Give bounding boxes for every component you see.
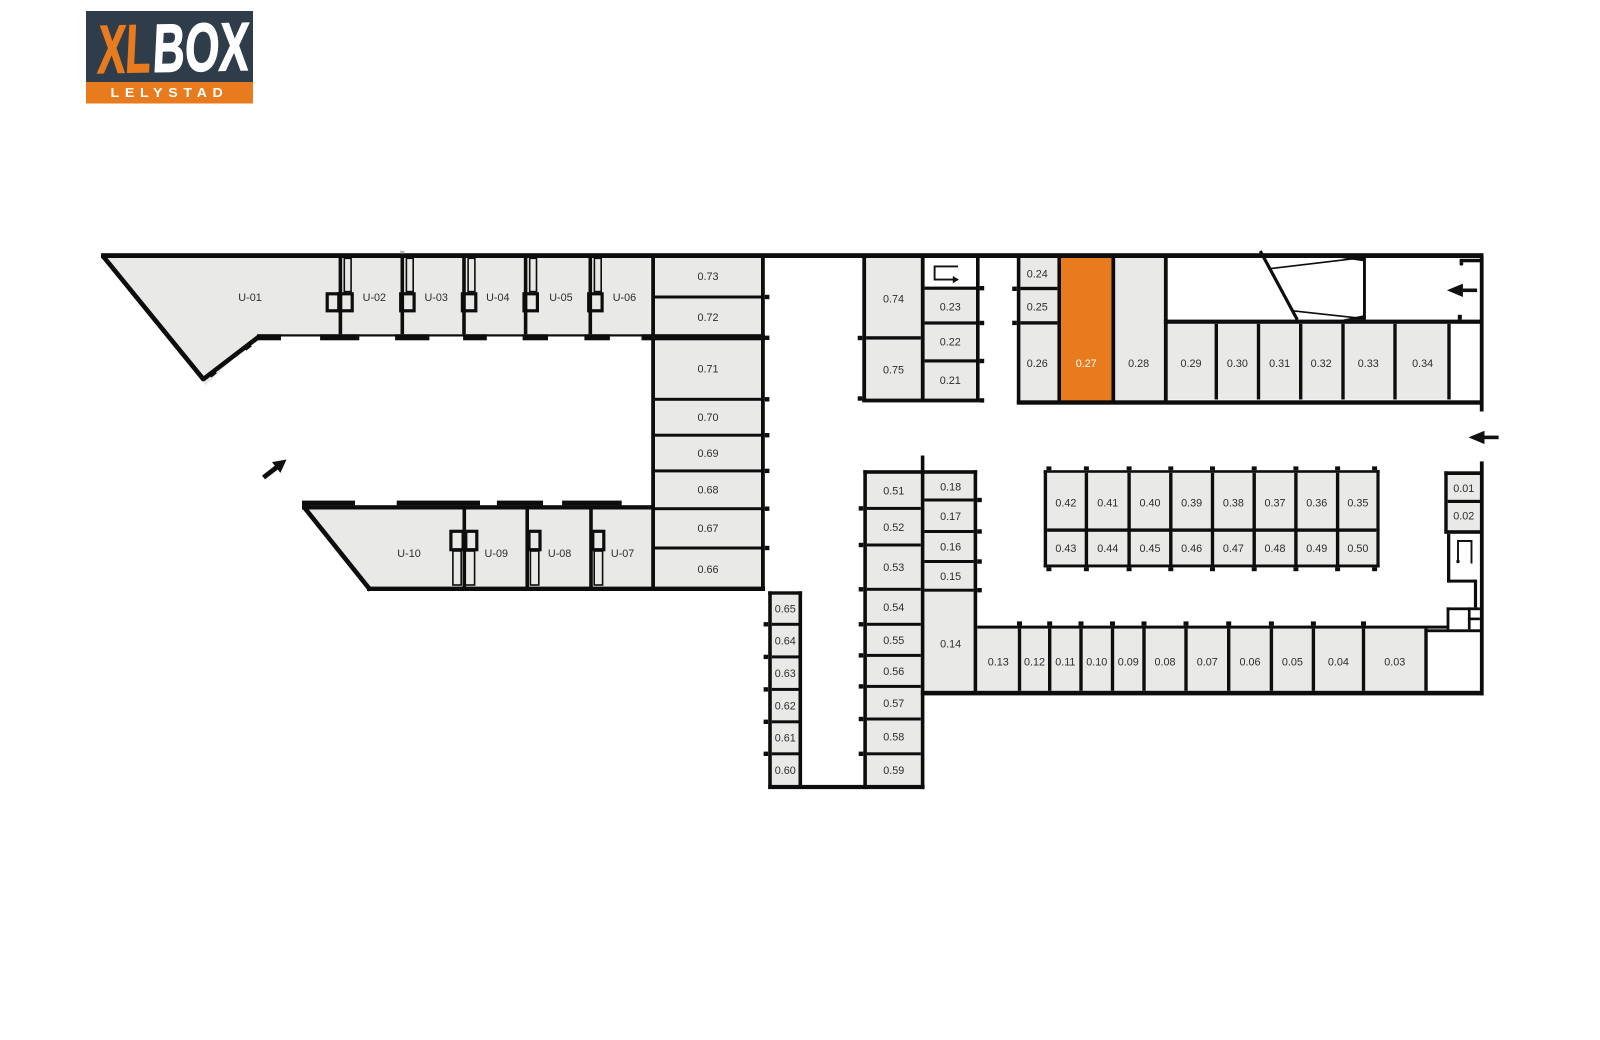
svg-text:0.44: 0.44 (1097, 543, 1118, 555)
svg-text:0.43: 0.43 (1055, 543, 1076, 555)
svg-text:0.04: 0.04 (1328, 656, 1349, 668)
svg-text:0.16: 0.16 (940, 541, 961, 553)
svg-text:0.03: 0.03 (1384, 656, 1405, 668)
svg-text:0.70: 0.70 (697, 412, 718, 424)
svg-text:0.61: 0.61 (775, 732, 796, 744)
svg-text:0.33: 0.33 (1358, 358, 1379, 370)
svg-text:0.39: 0.39 (1181, 498, 1202, 510)
svg-text:0.32: 0.32 (1311, 358, 1332, 370)
svg-text:0.40: 0.40 (1139, 498, 1160, 510)
svg-text:0.75: 0.75 (883, 364, 904, 376)
svg-text:0.67: 0.67 (697, 523, 718, 535)
svg-text:XL: XL (96, 11, 153, 88)
svg-text:0.56: 0.56 (883, 666, 904, 678)
svg-text:0.46: 0.46 (1181, 543, 1202, 555)
svg-text:U-04: U-04 (486, 292, 509, 304)
svg-text:0.60: 0.60 (775, 765, 796, 777)
svg-text:0.37: 0.37 (1265, 498, 1286, 510)
svg-text:0.48: 0.48 (1265, 543, 1286, 555)
svg-text:U-10: U-10 (397, 548, 420, 560)
svg-text:0.22: 0.22 (940, 336, 961, 348)
svg-text:0.72: 0.72 (697, 312, 718, 324)
svg-text:0.74: 0.74 (883, 293, 904, 305)
svg-text:0.26: 0.26 (1027, 358, 1048, 370)
svg-text:0.38: 0.38 (1223, 498, 1244, 510)
svg-text:U-03: U-03 (424, 292, 447, 304)
svg-text:U-07: U-07 (611, 548, 634, 560)
svg-text:0.09: 0.09 (1118, 656, 1139, 668)
svg-text:0.49: 0.49 (1306, 543, 1327, 555)
svg-text:0.47: 0.47 (1223, 543, 1244, 555)
svg-text:U-05: U-05 (549, 292, 572, 304)
svg-text:0.69: 0.69 (697, 448, 718, 460)
svg-text:0.12: 0.12 (1024, 656, 1045, 668)
svg-text:0.50: 0.50 (1347, 543, 1368, 555)
svg-text:U-06: U-06 (613, 292, 636, 304)
svg-text:0.31: 0.31 (1269, 358, 1290, 370)
svg-text:0.71: 0.71 (697, 363, 718, 375)
svg-text:0.62: 0.62 (775, 700, 796, 712)
svg-text:0.11: 0.11 (1055, 656, 1075, 668)
svg-text:0.27: 0.27 (1076, 358, 1097, 370)
svg-text:0.01: 0.01 (1453, 483, 1474, 495)
svg-text:0.59: 0.59 (883, 765, 904, 777)
svg-text:BOX: BOX (151, 9, 251, 87)
svg-text:0.58: 0.58 (883, 731, 904, 743)
svg-text:U-01: U-01 (238, 292, 261, 304)
svg-text:0.64: 0.64 (775, 635, 796, 647)
svg-text:0.41: 0.41 (1097, 498, 1118, 510)
svg-text:U-02: U-02 (363, 292, 386, 304)
svg-text:0.05: 0.05 (1282, 656, 1303, 668)
svg-text:0.24: 0.24 (1027, 268, 1048, 280)
svg-text:0.53: 0.53 (883, 562, 904, 574)
svg-text:0.21: 0.21 (940, 375, 961, 387)
svg-text:0.18: 0.18 (940, 481, 961, 493)
svg-text:0.30: 0.30 (1227, 358, 1248, 370)
svg-text:0.54: 0.54 (883, 602, 904, 614)
svg-text:0.36: 0.36 (1306, 498, 1327, 510)
svg-text:0.52: 0.52 (883, 522, 904, 534)
svg-text:0.68: 0.68 (697, 484, 718, 496)
svg-text:0.17: 0.17 (940, 511, 961, 523)
svg-text:0.73: 0.73 (697, 271, 718, 283)
svg-text:0.15: 0.15 (940, 571, 961, 583)
svg-text:0.28: 0.28 (1128, 358, 1149, 370)
svg-text:0.35: 0.35 (1347, 498, 1368, 510)
svg-text:0.08: 0.08 (1154, 656, 1175, 668)
svg-text:LELYSTAD: LELYSTAD (111, 86, 229, 100)
svg-text:0.14: 0.14 (940, 638, 961, 650)
svg-text:0.10: 0.10 (1086, 656, 1107, 668)
svg-text:0.07: 0.07 (1197, 656, 1218, 668)
svg-text:0.57: 0.57 (883, 698, 904, 710)
svg-text:U-08: U-08 (548, 548, 571, 560)
svg-text:U-09: U-09 (485, 548, 508, 560)
svg-text:0.34: 0.34 (1412, 358, 1433, 370)
svg-text:0.29: 0.29 (1180, 358, 1201, 370)
svg-text:0.63: 0.63 (775, 668, 796, 680)
svg-text:0.25: 0.25 (1027, 301, 1048, 313)
svg-text:0.51: 0.51 (883, 485, 904, 497)
svg-text:0.45: 0.45 (1139, 543, 1160, 555)
svg-text:0.55: 0.55 (883, 635, 904, 647)
svg-text:0.66: 0.66 (697, 564, 718, 576)
svg-text:0.13: 0.13 (988, 656, 1009, 668)
svg-text:0.06: 0.06 (1239, 656, 1260, 668)
svg-text:0.42: 0.42 (1055, 498, 1076, 510)
svg-text:0.23: 0.23 (940, 301, 961, 313)
svg-text:0.65: 0.65 (775, 603, 796, 615)
svg-text:0.02: 0.02 (1453, 510, 1474, 522)
